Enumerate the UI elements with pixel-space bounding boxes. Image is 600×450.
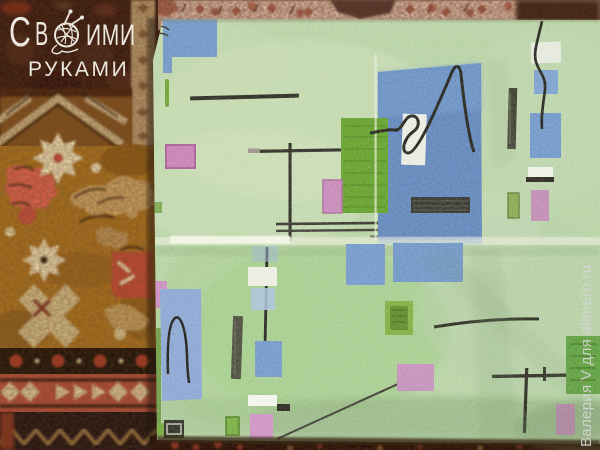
svg-text:ИМИ: ИМИ: [86, 20, 136, 52]
svg-text:РУКАМИ: РУКАМИ: [28, 58, 129, 81]
svg-text:С: С: [9, 8, 31, 55]
svg-text:Валерия V для alimero.ru: Валерия V для alimero.ru: [578, 265, 595, 447]
svg-text:В: В: [35, 15, 48, 53]
